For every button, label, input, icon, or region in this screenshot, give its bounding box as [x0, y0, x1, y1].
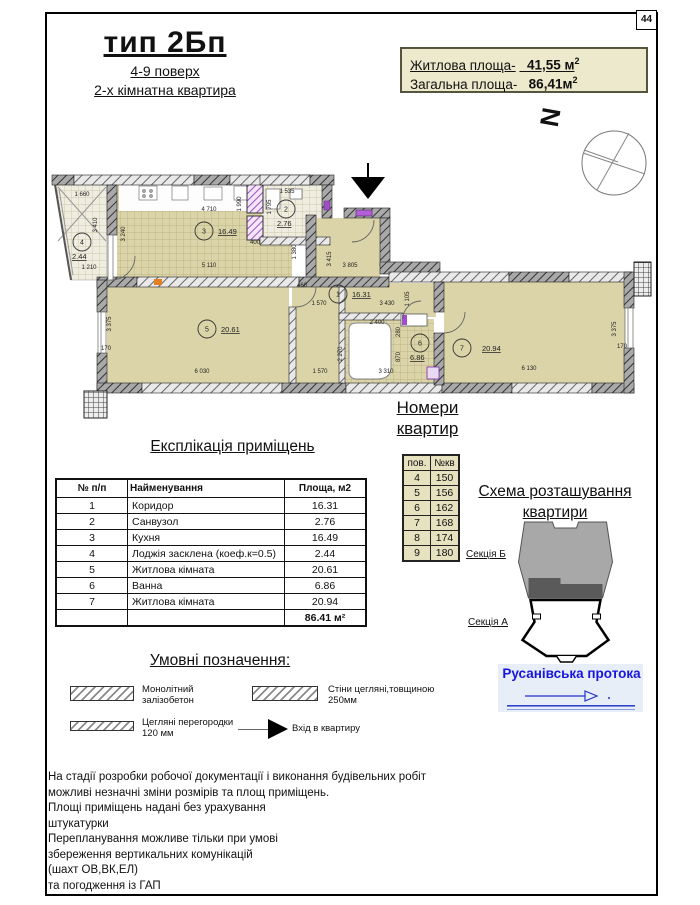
- plan-dim-label: 4 710: [201, 207, 217, 213]
- room-number: 4: [80, 240, 84, 247]
- table-cell: [128, 610, 285, 627]
- table-cell: 16.31: [285, 498, 367, 514]
- room-number: 2: [284, 207, 288, 214]
- river-arrow: [505, 686, 640, 712]
- apt-table-header: пов.№кв: [403, 455, 459, 471]
- table-row: 8174: [403, 531, 459, 546]
- table-cell: 5: [403, 486, 431, 501]
- area-summary-box: Житлова площа- 41,55 м2 Загальна площа- …: [400, 47, 648, 93]
- total-area-row: Загальна площа- 86,41м2: [410, 71, 638, 90]
- plan-dim-label: 1 795: [267, 199, 273, 215]
- section-a-shape: [523, 600, 609, 656]
- legend-partition-label: Цегляні перегородки 120 мм: [142, 717, 262, 739]
- plan-dim-label: 400: [250, 240, 261, 246]
- table-row: 4150: [403, 471, 459, 486]
- apartment-type: 2-х кімнатна квартира: [48, 82, 282, 98]
- plan-dim-label: 3 430: [379, 301, 395, 307]
- note-line: (шахт ОВ,ВК,ЕЛ): [48, 863, 468, 879]
- column-header: Площа, м2: [285, 479, 367, 498]
- plan-dim-label: 170: [617, 344, 628, 350]
- table-row: 6162: [403, 501, 459, 516]
- table-row: 5156: [403, 486, 459, 501]
- column-header: №кв: [431, 455, 460, 471]
- plan-dim-label: 3 415: [327, 251, 333, 267]
- table-cell: 6.86: [285, 578, 367, 594]
- explication-title: Експлікація приміщень: [105, 438, 360, 456]
- plan-dim-label: 3 375: [612, 321, 618, 337]
- table-cell: 2: [56, 514, 128, 530]
- room-area-label: 2.44: [72, 252, 87, 261]
- table-row: 4Лоджія засклена (коеф.к=0.5)2.44: [56, 546, 366, 562]
- table-row: 7168: [403, 516, 459, 531]
- plan-dim-label: 3 240: [121, 226, 127, 242]
- table-cell: [56, 610, 128, 627]
- table-cell: 4: [56, 546, 128, 562]
- table-cell: 9: [403, 546, 431, 562]
- table-cell: 20.61: [285, 562, 367, 578]
- section-a-label: Секція А: [468, 617, 508, 628]
- river-label: Русанівська протока: [494, 666, 649, 681]
- note-line: штукатурки: [48, 817, 468, 833]
- plan-dim-label: 3 375: [107, 316, 113, 332]
- legend-concrete-symbol: [70, 686, 134, 701]
- plan-dim-label: 1 105: [405, 291, 411, 307]
- plan-dim-label: 1 535: [279, 189, 295, 195]
- drawing-sheet: 44 тип 2Бп 4-9 поверх 2-х кімнатна кварт…: [0, 0, 700, 905]
- plan-title: тип 2Бп: [60, 26, 270, 60]
- plan-dim-label: 3 410: [93, 217, 99, 233]
- plan-dim-label: 1 990: [237, 196, 243, 212]
- room-number: 7: [460, 346, 464, 353]
- table-cell: 7: [403, 516, 431, 531]
- table-row: 9180: [403, 546, 459, 562]
- apt-numbers-table: пов.№кв 415051566162716881749180: [402, 454, 460, 562]
- table-cell: 20.94: [285, 594, 367, 610]
- table-cell: 150: [431, 471, 460, 486]
- total-area-label: Загальна площа-: [410, 75, 517, 94]
- table-row: 5Житлова кімната20.61: [56, 562, 366, 578]
- table-cell: 3: [56, 530, 128, 546]
- table-row: 1Коридор16.31: [56, 498, 366, 514]
- section-a-notch: [557, 656, 577, 662]
- room-number: 6: [418, 341, 422, 348]
- apt-numbers-title-line1: Номери: [385, 398, 470, 418]
- note-line: та погодження із ГАП: [48, 879, 468, 895]
- plan-dim-label: 870: [396, 351, 402, 362]
- floor-plan: 1 6603 4104 7101 9901 5351 7953 2405 110…: [44, 163, 656, 433]
- note-line: Перепланування можливе тільки при умові: [48, 832, 468, 848]
- table-cell: 1: [56, 498, 128, 514]
- section-b-label: Секція Б: [466, 549, 506, 560]
- table-row: 7Житлова кімната20.94: [56, 594, 366, 610]
- note-line: Площі приміщень надані без урахування: [48, 801, 468, 817]
- table-row: 6Ванна6.86: [56, 578, 366, 594]
- table-cell: 6: [403, 501, 431, 516]
- floor-range: 4-9 поверх: [60, 63, 270, 79]
- legend-entrance-arrow-icon: [268, 719, 288, 739]
- legend-concrete-label: Монолітний залізобетон: [142, 684, 252, 706]
- living-area-row: Житлова площа- 41,55 м2: [410, 52, 638, 71]
- table-cell: 86.41 м²: [285, 610, 367, 627]
- table-cell: 162: [431, 501, 460, 516]
- legend-partition-symbol: [70, 721, 134, 731]
- plan-dim-label: 1 660: [74, 192, 90, 198]
- table-cell: 16.49: [285, 530, 367, 546]
- note-line: збереження вертикальних комунікацій: [48, 848, 468, 864]
- vent-shafts: [247, 183, 263, 240]
- table-cell: Лоджія засклена (коеф.к=0.5): [128, 546, 285, 562]
- room-area-label: 16.31: [352, 290, 371, 299]
- legend-brick-wall-symbol: [252, 686, 318, 701]
- room-area-label: 6.86: [410, 353, 425, 362]
- plan-dim-label: 1 570: [311, 301, 327, 307]
- room-number: 5: [205, 327, 209, 334]
- plan-dim-label: 1 380: [292, 244, 298, 260]
- plan-dim-label: 5 110: [202, 263, 217, 269]
- table-cell: 156: [431, 486, 460, 501]
- total-area-value: 86,41м: [521, 77, 572, 92]
- note-line: На стадії розробки робочої документації …: [48, 770, 468, 786]
- room-area-label: 20.94: [482, 344, 501, 353]
- table-cell: 4: [403, 471, 431, 486]
- room-number: 1: [336, 292, 340, 299]
- notes-block: На стадії розробки робочої документації …: [48, 770, 468, 894]
- table-cell: 5: [56, 562, 128, 578]
- note-line: можливі незначні зміни розмірів та площ …: [48, 786, 468, 802]
- table-cell: 168: [431, 516, 460, 531]
- plan-dim-label: 6 030: [194, 369, 210, 375]
- explication-total-row: 86.41 м²: [56, 610, 366, 627]
- table-cell: Кухня: [128, 530, 285, 546]
- room-area-label: 20.61: [221, 325, 240, 334]
- page-number: 44: [636, 10, 657, 30]
- legend-title: Умовні позначення:: [130, 652, 310, 670]
- table-cell: Коридор: [128, 498, 285, 514]
- plan-dim-label: 3 805: [342, 263, 358, 269]
- explication-table: № п/пНайменуванняПлоща, м2 1Коридор16.31…: [55, 478, 367, 627]
- room-area-label: 16.49: [218, 227, 237, 236]
- table-row: 2Санвузол2.76: [56, 514, 366, 530]
- plan-dim-label: 6 130: [521, 366, 537, 372]
- table-cell: Житлова кімната: [128, 594, 285, 610]
- table-cell: Житлова кімната: [128, 562, 285, 578]
- legend-entrance-label: Вхід в квартиру: [292, 723, 402, 734]
- schema-title-line1: Схема розташування: [460, 483, 650, 501]
- table-row: 3Кухня16.49: [56, 530, 366, 546]
- room-area-label: 2.76: [277, 219, 292, 228]
- corridor-floor-band: [292, 283, 436, 317]
- explication-header: № п/пНайменуванняПлоща, м2: [56, 479, 366, 498]
- table-cell: 7: [56, 594, 128, 610]
- building-location-schema: [494, 518, 639, 663]
- column-header: Найменування: [128, 479, 285, 498]
- table-cell: 2.44: [285, 546, 367, 562]
- legend-entrance-arrow-line: [238, 729, 270, 730]
- apt-numbers-title-line2: квартир: [385, 419, 470, 439]
- table-cell: 6: [56, 578, 128, 594]
- plan-dim-label: 1 570: [312, 369, 328, 375]
- table-cell: 174: [431, 531, 460, 546]
- plan-dim-label: 170: [101, 346, 112, 352]
- plan-dim-label: 460: [297, 283, 308, 289]
- plan-dim-label: 2 400: [369, 320, 385, 326]
- room-number: 3: [202, 229, 206, 236]
- table-cell: Ванна: [128, 578, 285, 594]
- table-cell: 2.76: [285, 514, 367, 530]
- table-cell: 180: [431, 546, 460, 562]
- column-header: пов.: [403, 455, 431, 471]
- plan-dim-label: 3 310: [378, 369, 394, 375]
- table-cell: Санвузол: [128, 514, 285, 530]
- plan-dim-label: 1 210: [81, 265, 97, 271]
- legend-brick-wall-label: Стіни цегляні,товщиною 250мм: [328, 684, 453, 706]
- table-cell: 8: [403, 531, 431, 546]
- column-header: № п/п: [56, 479, 128, 498]
- plan-dim-label: 280: [396, 326, 402, 337]
- plan-dim-label: 2 270: [338, 346, 344, 362]
